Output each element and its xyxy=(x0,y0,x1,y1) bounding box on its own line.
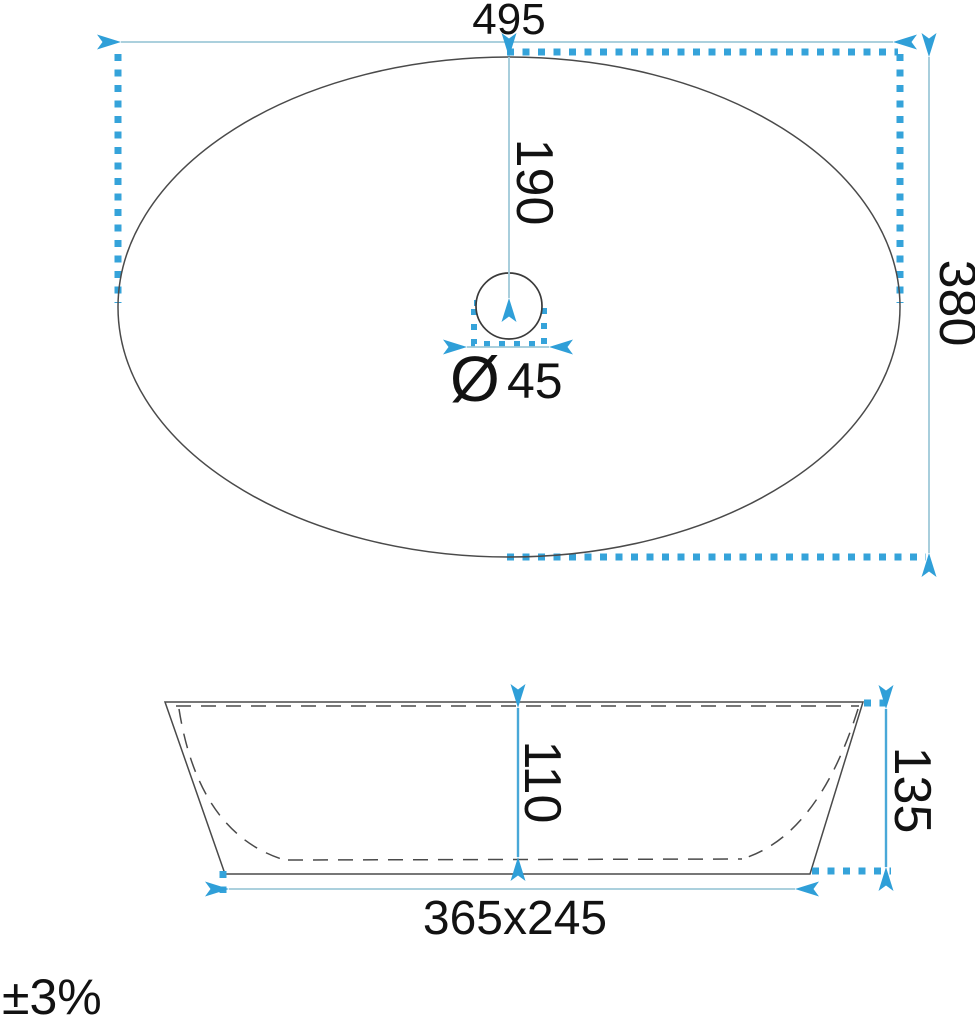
inner-depth-dimension-label: 110 xyxy=(513,741,571,824)
tolerance-note: ±3% xyxy=(2,969,102,1020)
width-dimension-label: 495 xyxy=(472,0,545,44)
drain-diameter-label-group: Ø 45 xyxy=(450,343,563,415)
inner-wall-left-dashed-curve xyxy=(179,709,288,861)
diameter-symbol-icon: Ø xyxy=(450,343,500,415)
washbasin-dimension-drawing: 495 380 190 Ø 45 110 135 xyxy=(0,0,975,1020)
drain-offset-dimension-label: 190 xyxy=(505,139,563,226)
overall-height-dimension-label: 135 xyxy=(883,747,941,834)
top-view: 495 380 190 Ø 45 xyxy=(118,0,975,557)
base-dimension-label: 365x245 xyxy=(423,892,607,945)
technical-drawing-page: 495 380 190 Ø 45 110 135 xyxy=(0,0,975,1020)
depth-dimension-label: 380 xyxy=(928,260,975,347)
inner-bottom-dashed-line xyxy=(288,859,742,860)
side-view: 110 135 365x245 xyxy=(165,702,941,945)
inner-wall-right-dashed-curve xyxy=(742,709,858,859)
drain-diameter-value: 45 xyxy=(507,353,563,409)
